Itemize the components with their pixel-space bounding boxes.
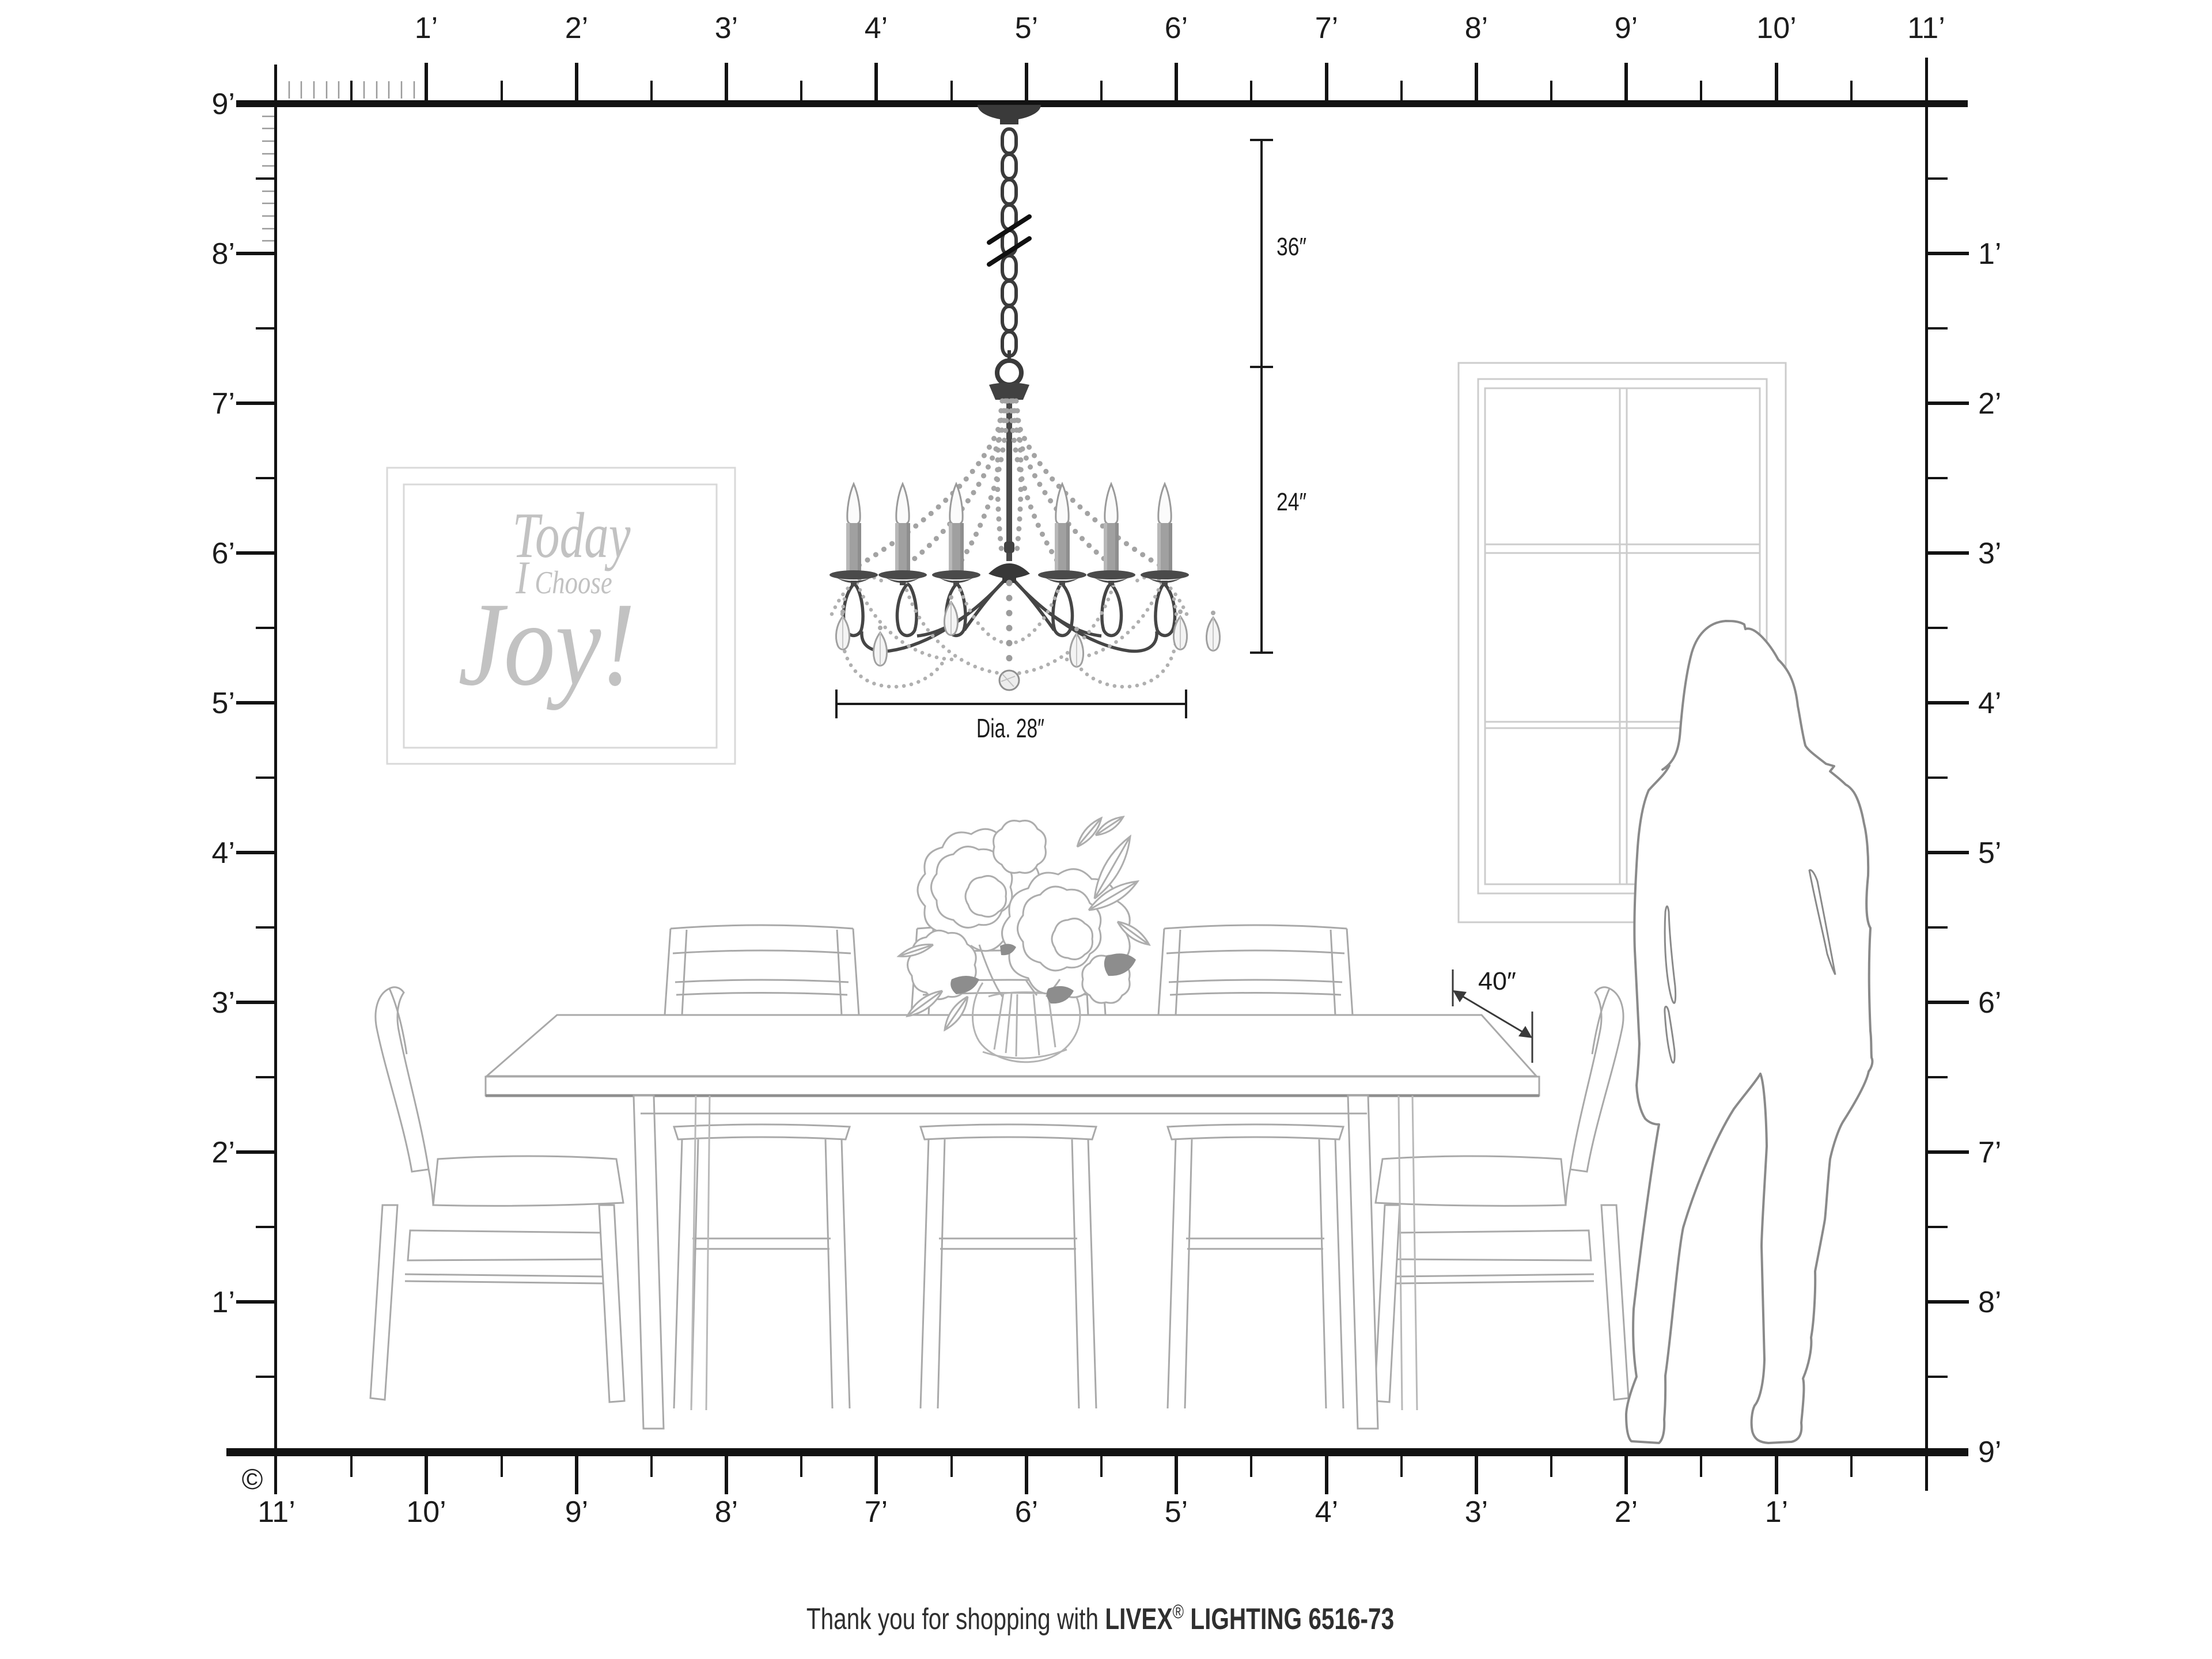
svg-text:9’: 9’ [565,1495,588,1529]
svg-text:10’: 10’ [1756,12,1796,45]
svg-text:24″: 24″ [1277,488,1306,516]
svg-text:5’: 5’ [212,687,235,720]
svg-text:4’: 4’ [1315,1495,1338,1529]
svg-text:1’: 1’ [415,12,438,45]
svg-text:1’: 1’ [1978,237,2001,271]
svg-text:3’: 3’ [1978,537,2001,570]
svg-text:Joy!: Joy! [458,578,635,711]
svg-text:40″: 40″ [1478,967,1516,995]
svg-text:8’: 8’ [212,237,235,271]
svg-text:4’: 4’ [1978,687,2001,720]
svg-text:6’: 6’ [212,537,235,570]
svg-text:9’: 9’ [212,88,235,121]
svg-text:7’: 7’ [865,1495,888,1529]
svg-text:36″: 36″ [1277,233,1306,261]
svg-text:3’: 3’ [1465,1495,1488,1529]
svg-text:8’: 8’ [1978,1286,2001,1319]
svg-text:©: © [242,1463,263,1495]
svg-text:4’: 4’ [865,12,888,45]
svg-text:4’: 4’ [212,836,235,870]
svg-text:11’: 11’ [1907,12,1945,45]
svg-text:6’: 6’ [1978,986,2001,1020]
svg-text:1’: 1’ [212,1286,235,1319]
svg-text:5’: 5’ [1165,1495,1188,1529]
svg-text:2’: 2’ [565,12,588,45]
svg-text:3’: 3’ [715,12,738,45]
svg-text:3’: 3’ [212,986,235,1020]
svg-text:2’: 2’ [1978,387,2001,421]
svg-text:6’: 6’ [1165,12,1188,45]
svg-text:6’: 6’ [1015,1495,1038,1529]
svg-text:7’: 7’ [1315,12,1338,45]
svg-text:9’: 9’ [1978,1435,2001,1469]
svg-text:2’: 2’ [1615,1495,1638,1529]
svg-text:Dia. 28″: Dia. 28″ [976,713,1044,743]
svg-text:5’: 5’ [1978,836,2001,870]
svg-text:10’: 10’ [406,1495,446,1529]
svg-text:9’: 9’ [1615,12,1638,45]
svg-text:8’: 8’ [715,1495,738,1529]
svg-text:8’: 8’ [1465,12,1488,45]
svg-text:5’: 5’ [1015,12,1038,45]
svg-text:1’: 1’ [1765,1495,1788,1529]
svg-text:Thank you for shopping with LI: Thank you for shopping with LIVEX® LIGHT… [806,1601,1394,1635]
svg-text:2’: 2’ [212,1136,235,1169]
svg-text:7’: 7’ [1978,1136,2001,1169]
svg-text:7’: 7’ [212,387,235,421]
svg-text:11’: 11’ [257,1495,296,1529]
svg-text:Today: Today [513,499,631,571]
